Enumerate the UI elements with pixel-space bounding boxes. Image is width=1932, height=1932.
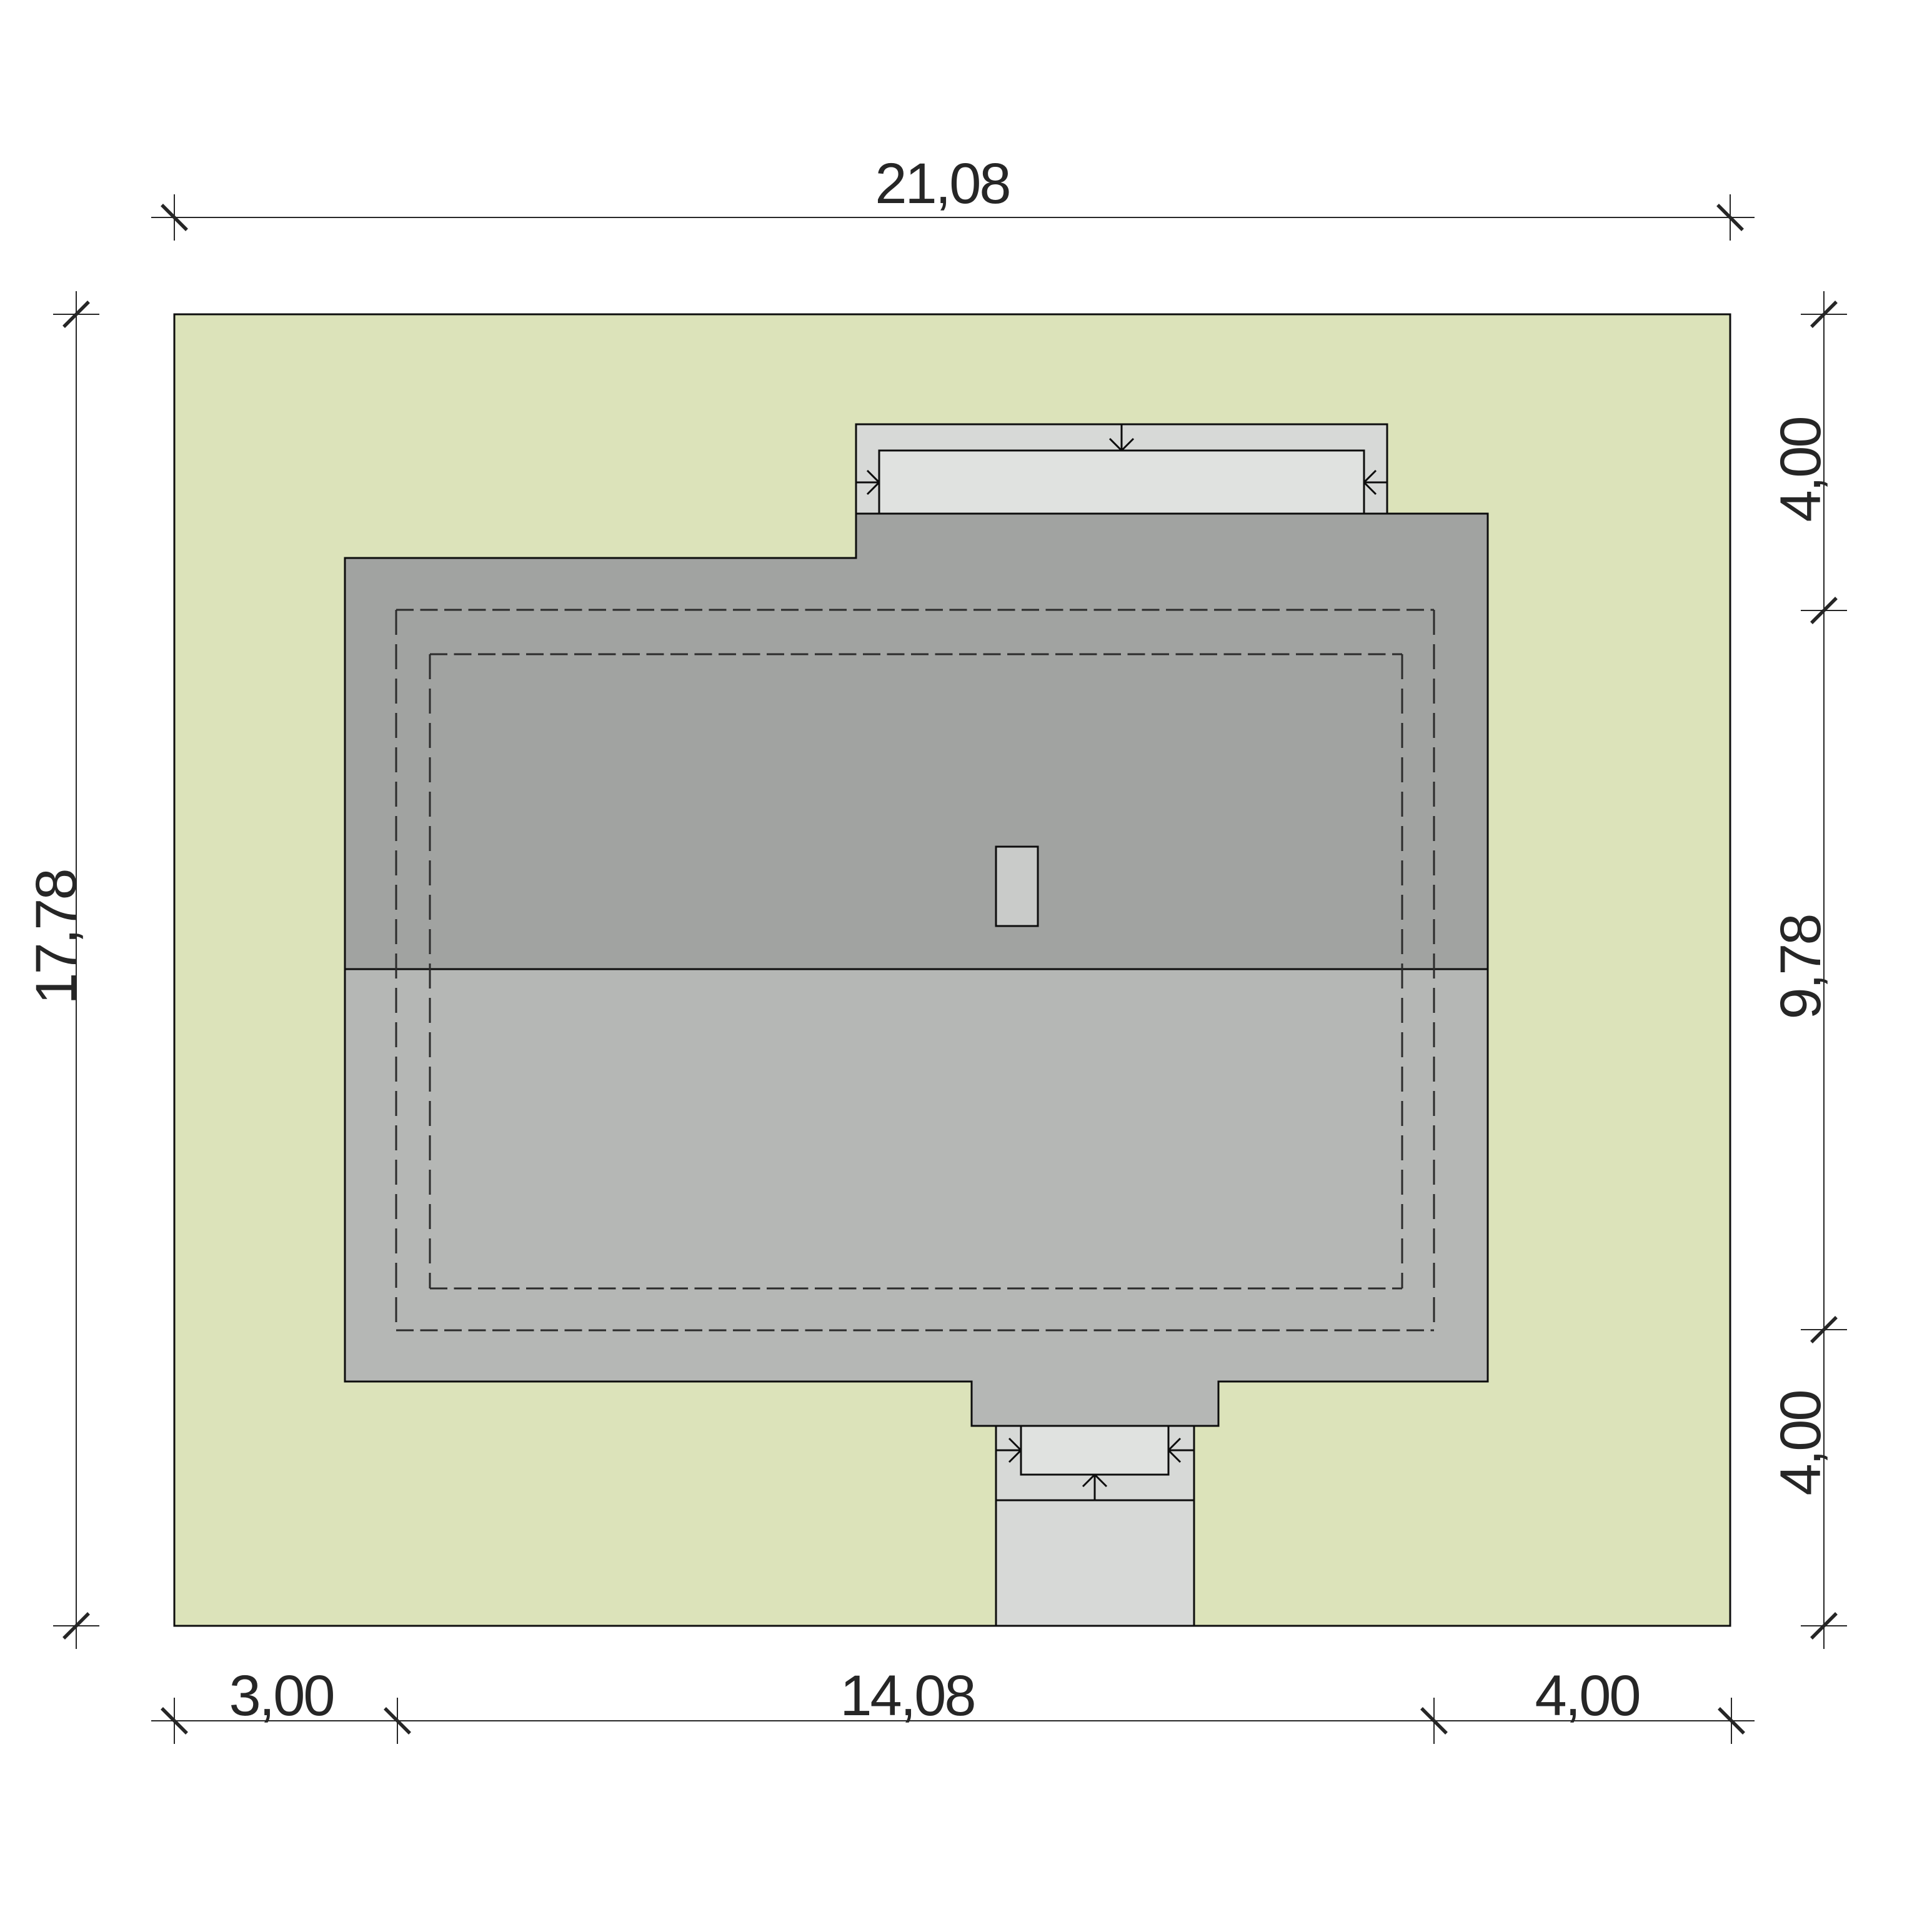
svg-text:21,08: 21,08 bbox=[875, 152, 1009, 216]
svg-text:4,00: 4,00 bbox=[1769, 417, 1833, 522]
svg-text:17,78: 17,78 bbox=[24, 870, 88, 1004]
svg-text:4,00: 4,00 bbox=[1535, 1664, 1639, 1728]
svg-text:9,78: 9,78 bbox=[1769, 915, 1833, 1019]
svg-text:3,00: 3,00 bbox=[229, 1664, 333, 1728]
svg-text:14,08: 14,08 bbox=[840, 1664, 974, 1728]
svg-text:4,00: 4,00 bbox=[1769, 1391, 1833, 1495]
